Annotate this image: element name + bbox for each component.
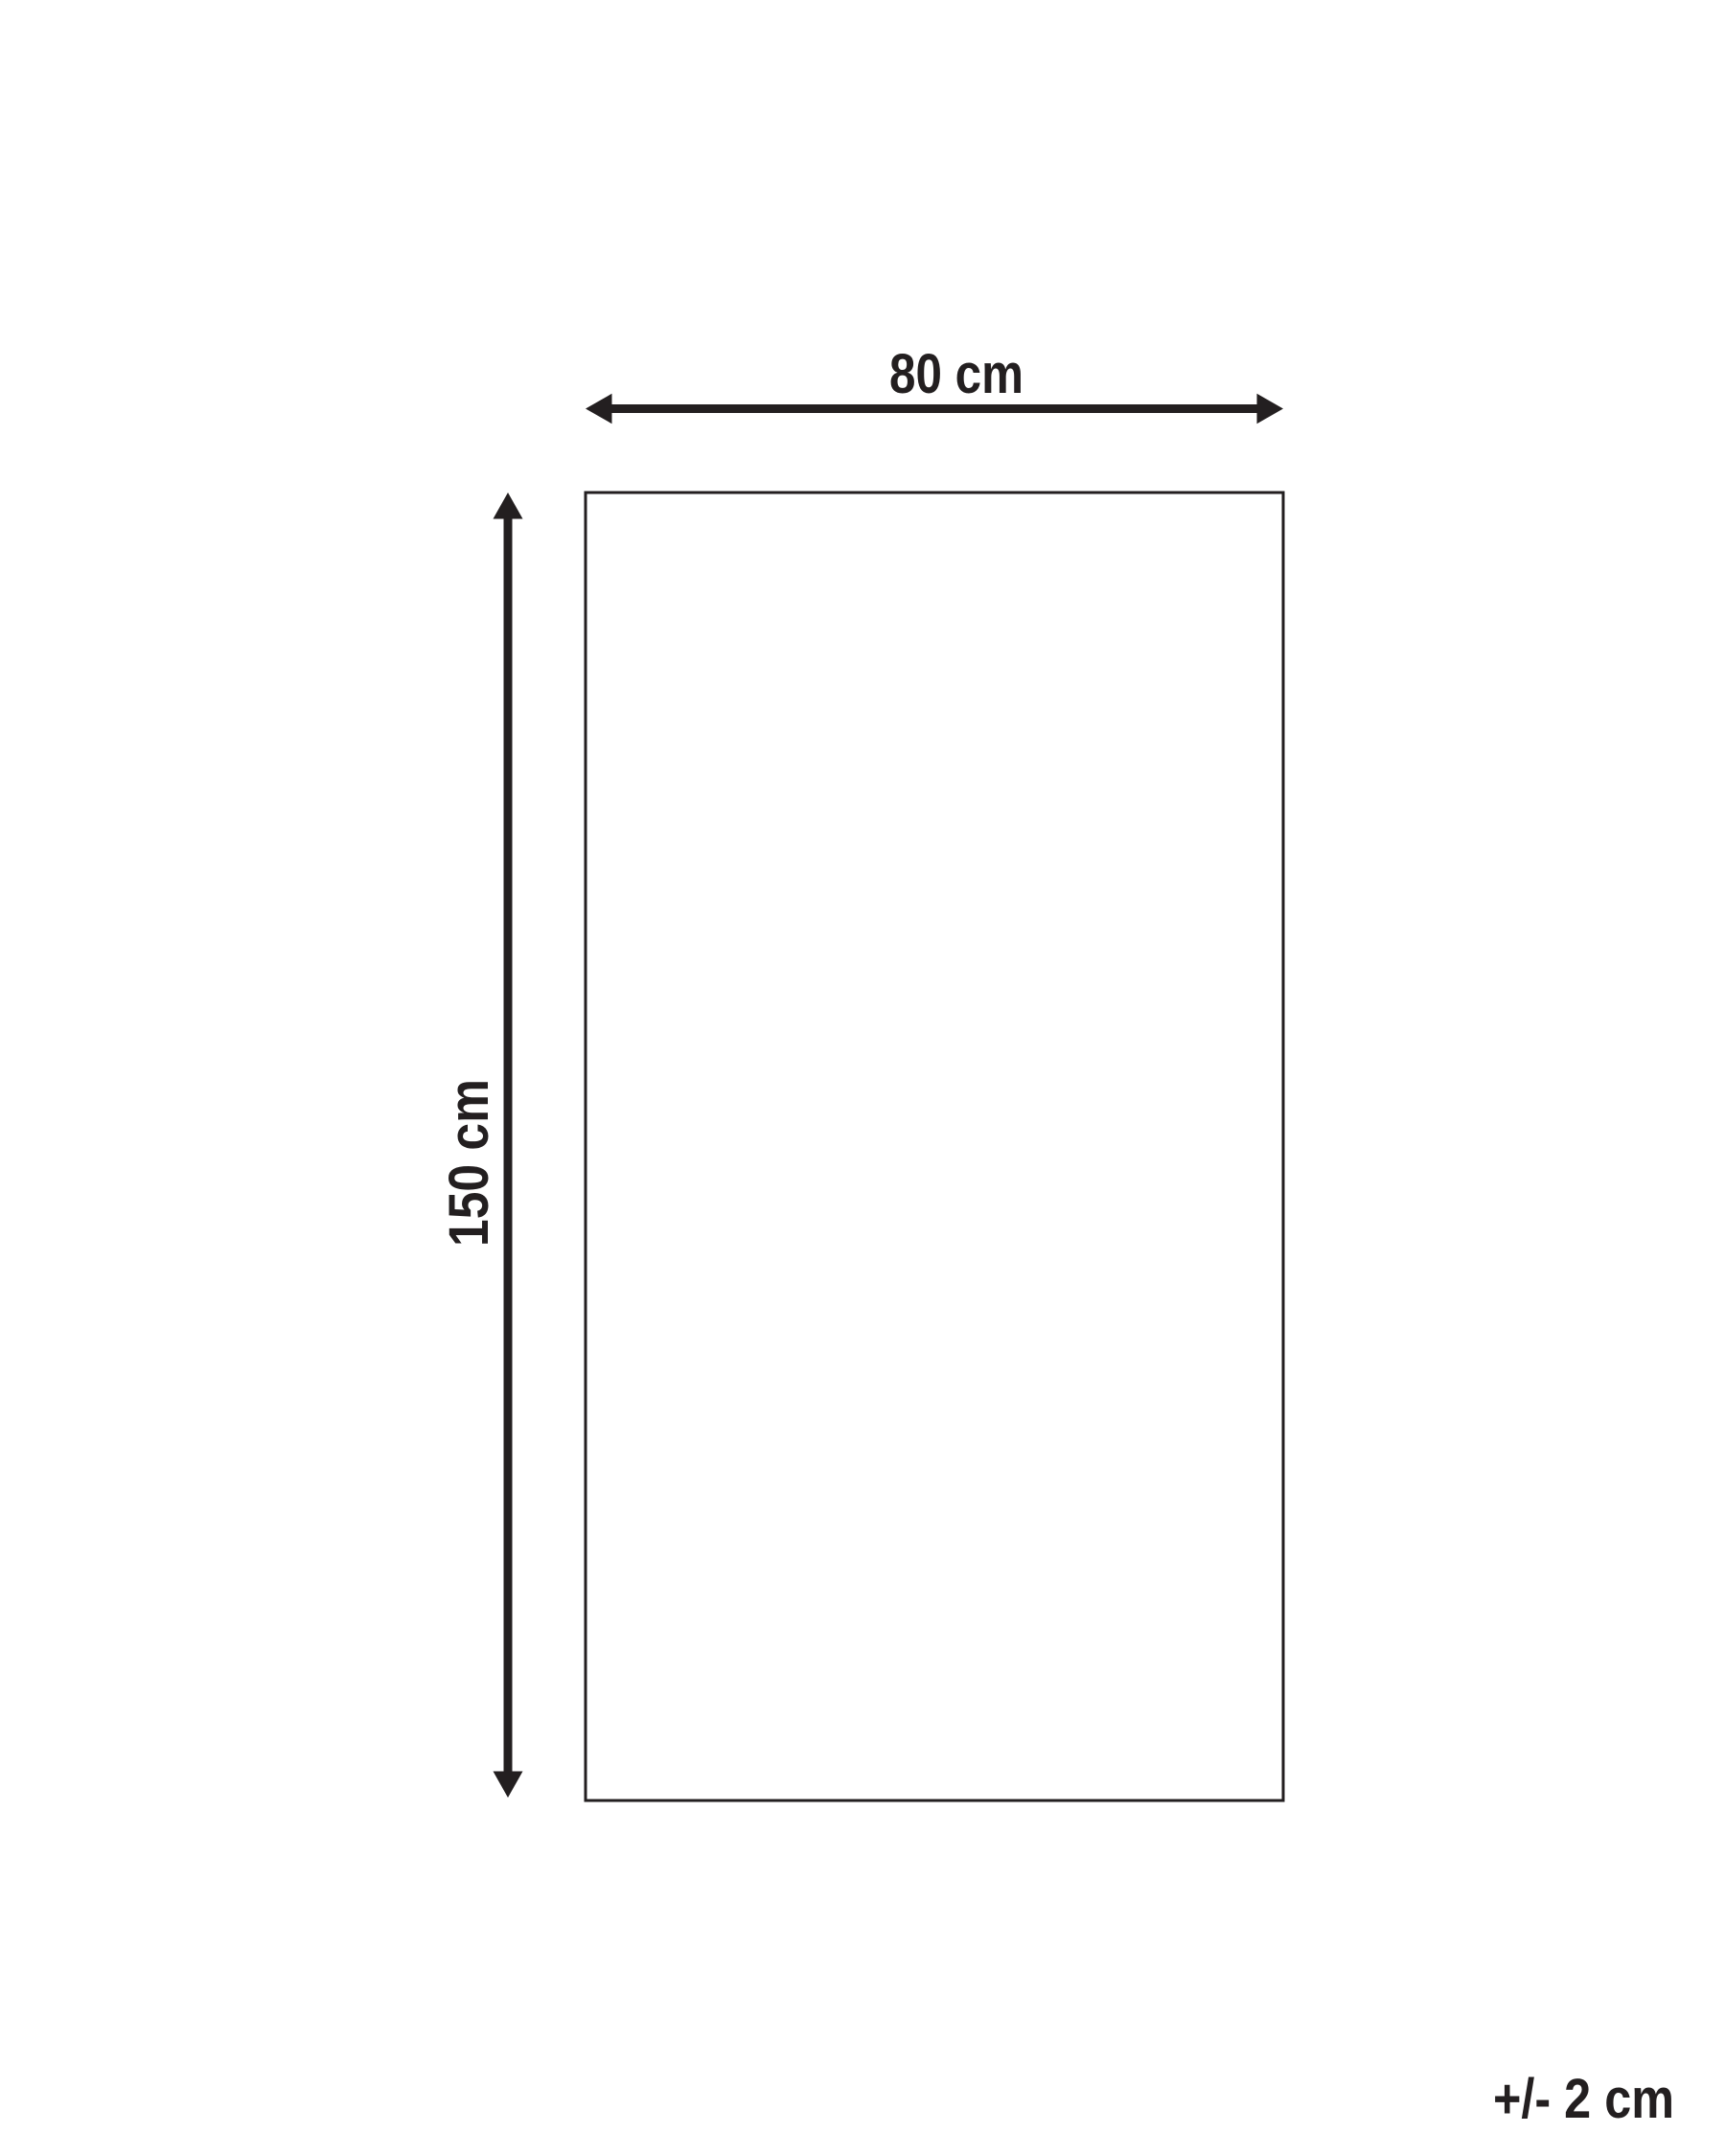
svg-text:150 cm: 150 cm <box>438 1079 500 1247</box>
svg-text:80 cm: 80 cm <box>889 343 1023 405</box>
svg-text:+/- 2 cm: +/- 2 cm <box>1493 2068 1674 2130</box>
